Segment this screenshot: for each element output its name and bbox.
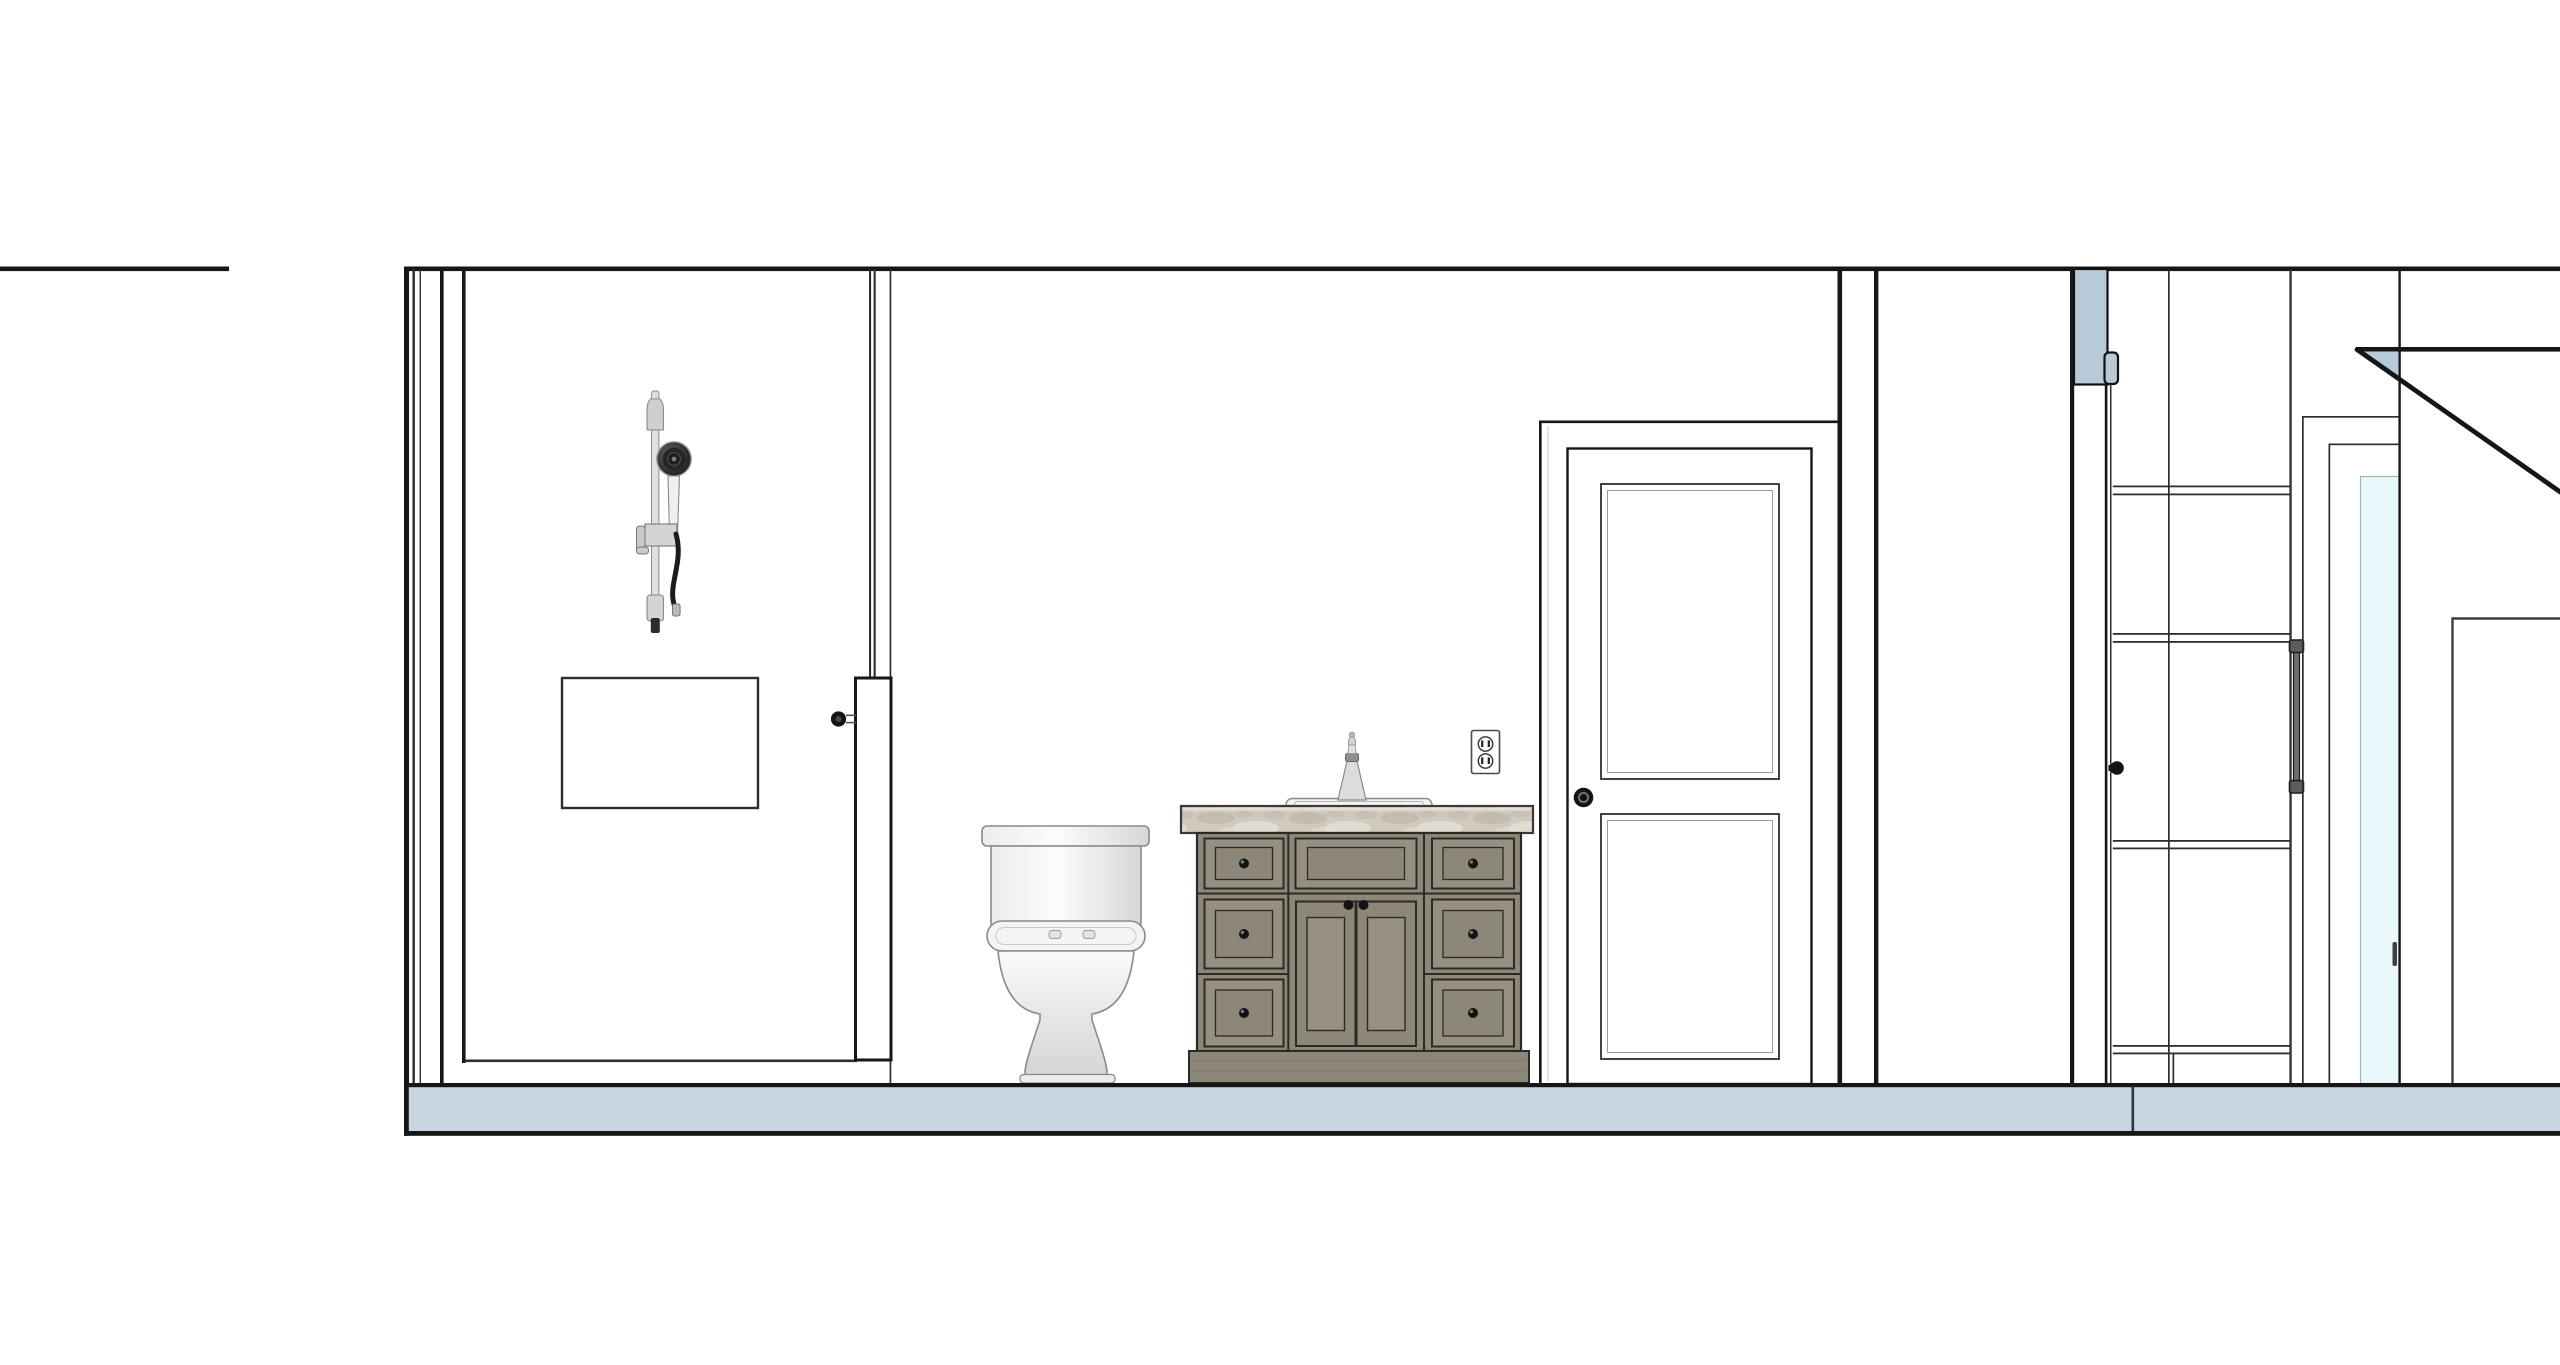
toilet-seat [987, 921, 1145, 951]
cabinet-divider-left [1287, 833, 1289, 1051]
partition-lower-panel [856, 678, 892, 1060]
hand-shower-fixture [637, 391, 692, 633]
partition-knob-stem-b [846, 722, 856, 724]
adjacent-room-elevation [2070, 269, 2560, 1085]
cabinet-divider-right [1423, 833, 1425, 1051]
toilet-bowl-pedestal [998, 951, 1134, 1078]
sloped-ceiling-top-line [2356, 347, 2560, 352]
poche-cut-wall [2074, 269, 2108, 385]
door-edge-line-a [2105, 384, 2108, 1084]
door-knob [1574, 788, 1594, 808]
door-panel-bottom [1601, 814, 1779, 1059]
poche-hinge-tab [2105, 353, 2119, 385]
toilet-seat-hinge-left [1049, 931, 1061, 939]
frame-inner-jamb-line [2329, 444, 2331, 1084]
wall-post-left-line [1838, 269, 1843, 1085]
shower-head-center [672, 457, 677, 462]
vanity-center-section [1296, 839, 1417, 1047]
opening-jamb-line [2070, 269, 2074, 1085]
vanity-drawer [1432, 900, 1514, 969]
vanity-drawer [1205, 839, 1284, 889]
toilet-seat-hinge-right [1083, 931, 1095, 939]
partition-wall-post [1838, 269, 1879, 1085]
partition-knob-stem-a [846, 715, 856, 717]
wall-post-right-line [1874, 269, 1878, 1085]
toilet [982, 826, 1149, 1083]
shower-niche [562, 678, 758, 808]
door-panel-top [1601, 484, 1779, 779]
ceiling-line [404, 267, 2560, 272]
closet-shelf [2113, 486, 2290, 496]
closet-shelf [2113, 840, 2290, 849]
toilet-tank-lid [982, 826, 1149, 846]
vanity-drawers-left [1205, 839, 1284, 1047]
closet-kick-line [2173, 1054, 2175, 1084]
mirror-panel-handle [2393, 942, 2398, 966]
door-casing-reveal-line [1548, 426, 1549, 1082]
left-wall-outer-line [404, 268, 409, 1085]
sloped-ceiling-section [2356, 347, 2560, 493]
vanity-drawer [1432, 980, 1514, 1047]
hose-connector [673, 604, 681, 616]
mirror-door-frames [2302, 269, 2401, 1084]
frame-outer-head-line [2302, 416, 2399, 418]
countertop-highlight [1183, 808, 1531, 811]
closet-right-boundary-line [2289, 269, 2291, 1084]
bathroom-elevation [404, 267, 2560, 1086]
cabinet-rail-right [1425, 973, 1521, 975]
far-wall-opening [2453, 619, 2560, 1085]
faucet-body [1338, 761, 1366, 800]
closet-shelf [2113, 633, 2290, 643]
frame-outer-jamb-line [2302, 416, 2304, 1084]
vanity-toe-base [1189, 1051, 1529, 1083]
floor-fill [406, 1086, 2560, 1132]
vanity-door-knob-left [1344, 900, 1354, 910]
left-wall-thin-line [420, 269, 421, 1084]
bracket-lever-foot [637, 547, 649, 554]
vanity-door-left [1296, 902, 1356, 1047]
mirror-glass-panel [2361, 477, 2400, 1084]
faucet [1338, 732, 1366, 800]
closet-shelf [2113, 1045, 2290, 1054]
towel-bar-bracket-top [2290, 640, 2304, 653]
frame-inner-head-line [2329, 444, 2400, 446]
toe-base-grain-line [1192, 1070, 1526, 1071]
vanity-drawers-right [1432, 839, 1514, 1047]
slide-bar-top-tip [652, 391, 659, 399]
door-edge-line-b [2110, 384, 2112, 1084]
glass-rail-line-b [874, 269, 876, 678]
shower-area [465, 269, 891, 1084]
edge-door-knob [2110, 761, 2124, 775]
open-door-edge [2105, 384, 2124, 1084]
vanity-drawer [1205, 980, 1284, 1047]
outlet [1472, 731, 1500, 774]
left-wall-stud-line [440, 269, 444, 1084]
slide-bar-top-cap [647, 399, 664, 431]
floor-seam [2132, 1087, 2135, 1132]
left-wall-section [404, 268, 466, 1085]
towel-bar-bracket-bottom [2290, 781, 2304, 794]
mirror-right-edge-line [2398, 269, 2400, 1084]
vanity-drawer [1432, 839, 1514, 889]
closet-shelving-bay [2113, 269, 2304, 1084]
vanity [1181, 732, 1533, 1083]
floor-bottom-line [404, 1131, 2560, 1136]
closet-divider-line [2168, 269, 2170, 1084]
faucet-collar [1346, 754, 1359, 762]
toe-base-grain-line [1192, 1060, 1526, 1061]
jamb-poche-section [2074, 269, 2118, 385]
left-wall-inner-face-line [462, 269, 466, 1063]
floor-top-line [404, 1083, 2560, 1087]
vanity-false-front-panel [1308, 848, 1405, 880]
glass-rail-line-a [869, 269, 871, 678]
shower-glass-partition [831, 269, 891, 1084]
towel-bar-rod [2294, 650, 2300, 783]
outlet-socket-bottom [1478, 754, 1492, 768]
shower-curb-line [465, 1060, 857, 1063]
outlet-socket-top [1478, 737, 1492, 751]
cabinet-rail-left [1197, 973, 1288, 975]
faucet-neck [1348, 745, 1356, 754]
vanity-door-knob-right [1359, 900, 1369, 910]
sloped-ceiling-diagonal [2357, 350, 2560, 493]
slide-bar-bracket [645, 524, 677, 546]
partition-knob-center [836, 716, 842, 722]
left-wall-line [413, 269, 415, 1084]
faucet-tip [1350, 732, 1355, 737]
toilet-base [1020, 1075, 1115, 1084]
ceiling-line-left-segment [0, 267, 229, 272]
slide-bar-bottom-cap [647, 595, 664, 621]
slide-bar-bottom-tip [651, 618, 660, 633]
bathroom-door [1540, 422, 1839, 1084]
elevation-canvas [0, 0, 2560, 1365]
vanity-door-right [1357, 902, 1417, 1047]
floor-left-cap [404, 1083, 409, 1136]
vanity-drawer [1205, 900, 1284, 969]
cabinet-rail-top [1197, 893, 1521, 895]
floor-band [404, 1083, 2560, 1136]
